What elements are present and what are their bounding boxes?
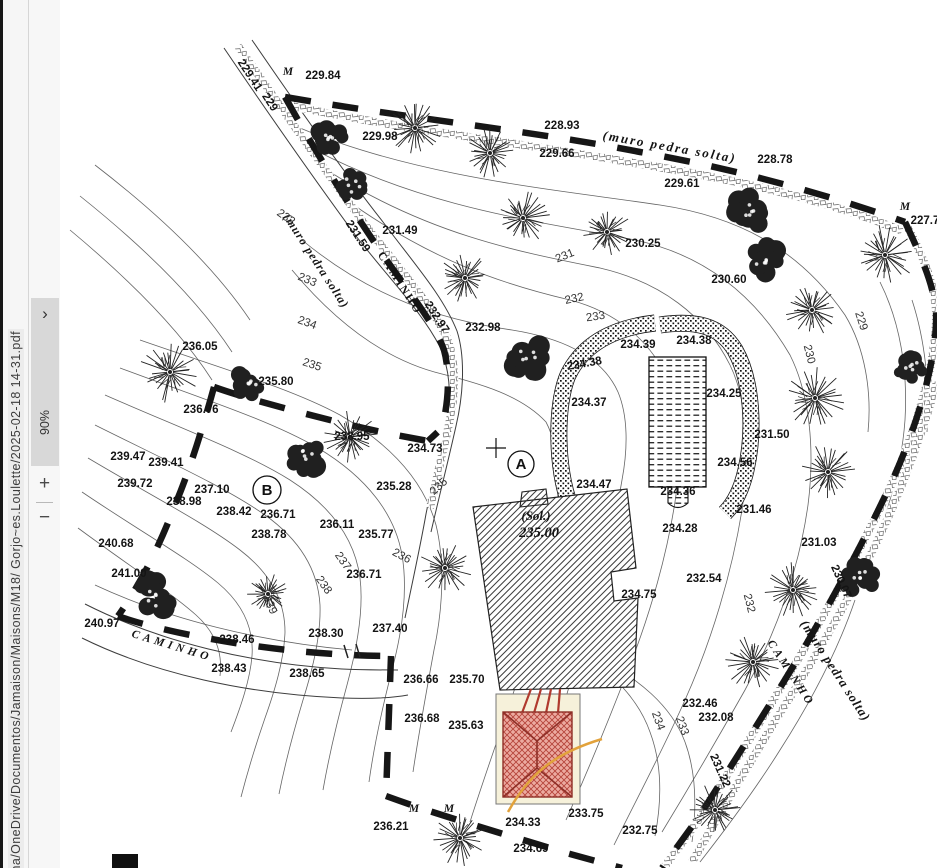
map-label: 236.05 (182, 341, 218, 353)
map-label: 235.77 (358, 529, 393, 541)
map-label: M (899, 201, 911, 213)
map-label: 234.38 (676, 335, 712, 347)
map-label: 234.75 (621, 589, 657, 601)
map-label: 236.71 (346, 569, 382, 581)
tree-symbol-dark (894, 350, 927, 383)
map-label: 238.65 (289, 668, 325, 680)
map-label: 234.69 (513, 843, 548, 855)
tree-symbol-dark (336, 168, 368, 200)
map-label: 239.72 (117, 478, 152, 490)
map-label: 237.10 (194, 484, 229, 496)
map-label: 237.40 (372, 623, 407, 635)
map-label: M (408, 803, 420, 815)
map-label: 232 (741, 593, 757, 615)
map-label: 232.75 (622, 825, 658, 837)
map-label: 238.78 (251, 529, 287, 541)
pdf-viewer-window: AB229.41229M229.84229.98228.93(muro pedr… (0, 0, 937, 868)
map-label: 231.46 (736, 504, 771, 516)
map-label: 239.41 (148, 457, 184, 469)
map-label: 234.56 (717, 457, 752, 469)
map-label: 238.46 (219, 634, 254, 646)
tree-symbol-dark (748, 237, 786, 282)
map-label: 238.98 (166, 496, 202, 508)
tree-symbol-dark (287, 441, 326, 478)
map-label: 236 (390, 547, 413, 567)
map-label: 228.78 (757, 154, 793, 166)
map-label: 234 (296, 314, 319, 332)
tree-symbol (861, 225, 912, 282)
map-label: 229.98 (362, 131, 398, 143)
map-label: 228.93 (544, 120, 579, 132)
main-building (473, 489, 638, 690)
map-label: 234 (649, 710, 667, 733)
map-label: 231.50 (754, 429, 789, 441)
red-roof-building (496, 689, 602, 812)
map-label: 235 (301, 356, 323, 373)
map-label: 240.68 (98, 538, 134, 550)
map-label: 236.11 (320, 519, 355, 531)
tree-symbol-dark (726, 188, 768, 233)
map-label: 231.49 (382, 225, 417, 237)
map-label: 235.00 (518, 525, 559, 541)
map-label: 238.30 (308, 628, 343, 640)
map-label: 236.21 (373, 821, 409, 833)
map-label: 235.63 (448, 720, 483, 732)
map-label: 232.46 (682, 698, 717, 710)
map-label: 234.47 (576, 479, 611, 491)
map-label: 233 (585, 310, 606, 325)
window-edge-strip (0, 0, 3, 868)
tree-symbol (501, 192, 550, 239)
viewer-side-panel: › 90% + − (29, 0, 60, 868)
map-label: 235.70 (449, 674, 484, 686)
map-label: 238.42 (216, 506, 251, 518)
zoom-level-label: 90% (38, 410, 52, 435)
map-label: 227.7 (911, 215, 937, 227)
map-label: 232.98 (465, 322, 501, 334)
map-label: 236.71 (260, 509, 296, 521)
tree-symbol (786, 288, 833, 333)
map-label: 233.75 (568, 808, 604, 820)
tree-symbol (802, 446, 855, 498)
map-label: 234.39 (620, 339, 655, 351)
map-label: 234.36 (660, 486, 695, 498)
map-label: 234.73 (407, 443, 442, 455)
map-label: 234.25 (706, 388, 742, 400)
map-label: 233 (296, 271, 318, 289)
zoom-divider (36, 502, 53, 503)
zoom-out-button[interactable]: − (29, 505, 60, 531)
map-label: 230.60 (711, 274, 746, 286)
map-label: 234.33 (505, 817, 540, 829)
map-label: (Sol.) (521, 508, 550, 523)
panel-collapsed-block: › 90% (31, 298, 59, 466)
site-plan-drawing: AB229.41229M229.84229.98228.93(muro pedr… (0, 0, 937, 868)
map-label: M (282, 66, 294, 78)
map-label: 235.80 (258, 376, 293, 388)
map-label: 229 (852, 310, 869, 332)
map-label: 241.00 (111, 568, 146, 580)
map-label: 234.37 (571, 397, 606, 409)
tree-symbol (789, 367, 844, 424)
annex-structure (649, 357, 706, 508)
map-label: 235.28 (376, 481, 412, 493)
map-label: 240.97 (84, 618, 119, 630)
expand-panel-button[interactable]: › (31, 301, 59, 327)
map-label: 238.43 (211, 663, 246, 675)
map-label: 233 (673, 715, 691, 737)
tree-symbol-dark (504, 335, 550, 381)
map-label: 239.47 (110, 451, 145, 463)
map-label: 230.25 (625, 238, 661, 250)
map-label: 230 (801, 344, 817, 366)
map-label: 229.66 (539, 148, 574, 160)
map-label: 232 (564, 291, 585, 307)
file-path-vertical-label: ma/OneDrive/Documentos/Jamaison/Maisons/… (8, 329, 24, 868)
map-label: 236.76 (183, 404, 218, 416)
map-label: 229.61 (664, 178, 700, 190)
partial-map-frame (112, 854, 138, 868)
map-label: 238 (313, 574, 334, 597)
marker-A: A (508, 451, 534, 477)
tree-symbol (444, 255, 485, 302)
tree-symbol (765, 562, 817, 616)
tree-symbol (583, 212, 628, 255)
svg-text:A: A (516, 456, 527, 473)
map-label: 236.66 (403, 674, 438, 686)
zoom-in-button[interactable]: + (29, 471, 60, 497)
tree-symbol (421, 545, 471, 590)
file-path-rail: ma/OneDrive/Documentos/Jamaison/Maisons/… (3, 0, 29, 868)
map-label: 232.54 (686, 573, 722, 585)
map-label: 231.03 (801, 537, 836, 549)
marker-B: B (253, 476, 281, 504)
map-label: 236.68 (404, 713, 440, 725)
survey-crosshair (486, 438, 506, 458)
map-label: 238.95 (334, 431, 370, 443)
map-label: 229.84 (305, 70, 341, 82)
map-label: 234.28 (662, 523, 698, 535)
map-label: 232.08 (698, 712, 734, 724)
svg-text:B: B (262, 482, 273, 499)
tree-symbol (433, 814, 487, 866)
map-label: M (443, 803, 455, 815)
